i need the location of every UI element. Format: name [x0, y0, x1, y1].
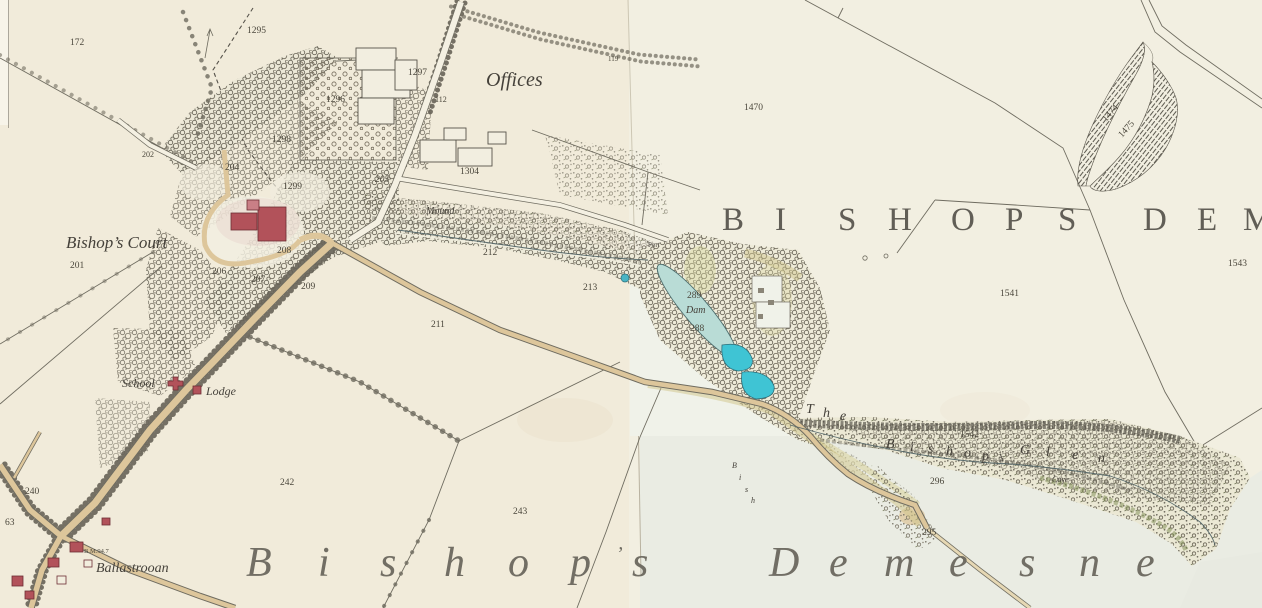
svg-text:D: D — [1143, 202, 1167, 238]
svg-text:Lodge: Lodge — [205, 384, 237, 398]
svg-text:202: 202 — [142, 150, 154, 159]
svg-text:i: i — [318, 540, 330, 586]
svg-text:B: B — [886, 437, 895, 452]
svg-text:1298: 1298 — [272, 135, 291, 145]
svg-text:Ballastrooan: Ballastrooan — [96, 561, 169, 576]
svg-text:288: 288 — [690, 324, 705, 334]
svg-text:D: D — [768, 540, 799, 586]
svg-text:E: E — [1197, 202, 1217, 238]
svg-text:1470: 1470 — [744, 103, 763, 113]
svg-text:1297: 1297 — [408, 68, 427, 78]
svg-text:Port: Port — [648, 241, 660, 249]
svg-text:h: h — [823, 406, 830, 421]
svg-text:n: n — [1098, 451, 1105, 466]
svg-text:h: h — [444, 540, 465, 586]
svg-text:p: p — [567, 540, 591, 586]
svg-text:205: 205 — [375, 175, 390, 185]
svg-text:B: B — [722, 202, 744, 238]
svg-text:T: T — [806, 402, 815, 417]
svg-text:1542: 1542 — [960, 430, 979, 440]
svg-text:s: s — [632, 540, 648, 586]
svg-text:S: S — [838, 202, 856, 238]
svg-text:o: o — [508, 540, 529, 586]
svg-text:H: H — [888, 202, 912, 238]
svg-text:o: o — [964, 446, 971, 461]
svg-text:Offices: Offices — [486, 69, 543, 91]
svg-text:h: h — [751, 496, 755, 505]
svg-text:211: 211 — [431, 320, 445, 330]
svg-text:204: 204 — [225, 163, 240, 173]
svg-text:e: e — [1072, 448, 1078, 463]
svg-text:296: 296 — [930, 477, 945, 487]
svg-text:’s: ’s — [998, 453, 1004, 464]
svg-text:I: I — [775, 202, 786, 238]
svg-text:m: m — [884, 540, 914, 586]
svg-text:P: P — [1005, 202, 1023, 238]
svg-text:s: s — [380, 540, 396, 586]
svg-text:213: 213 — [583, 283, 598, 293]
svg-text:s: s — [1019, 540, 1035, 586]
svg-text:O: O — [951, 202, 975, 238]
svg-text:240: 240 — [25, 487, 40, 497]
svg-text:207: 207 — [251, 275, 266, 285]
svg-text:B: B — [732, 461, 737, 470]
svg-text:289: 289 — [687, 291, 702, 301]
svg-text:S: S — [1058, 202, 1076, 238]
svg-text:Cave: Cave — [1052, 475, 1069, 484]
svg-text:208: 208 — [277, 246, 292, 256]
svg-text:1295: 1295 — [247, 26, 266, 36]
svg-text:242: 242 — [280, 478, 295, 488]
svg-text:201: 201 — [70, 261, 85, 271]
svg-text:e: e — [840, 409, 846, 424]
svg-text:1541: 1541 — [1000, 289, 1019, 299]
svg-text:B: B — [246, 540, 272, 586]
svg-text:s: s — [745, 485, 748, 494]
svg-text:209: 209 — [301, 282, 316, 292]
svg-text:Mound: Mound — [425, 206, 455, 217]
svg-text:206: 206 — [212, 267, 227, 277]
svg-text:1304: 1304 — [460, 167, 479, 177]
svg-text:e: e — [1136, 540, 1155, 586]
svg-text:i: i — [739, 473, 741, 482]
svg-text:h: h — [946, 444, 953, 459]
svg-text:212: 212 — [483, 248, 498, 258]
svg-text:172: 172 — [70, 38, 85, 48]
svg-text:Dam: Dam — [685, 305, 705, 316]
svg-text:63: 63 — [5, 518, 15, 528]
svg-text:s: s — [928, 442, 934, 457]
svg-text:e: e — [949, 540, 968, 586]
svg-text:112: 112 — [435, 95, 447, 104]
svg-text:M: M — [1243, 202, 1262, 238]
svg-text:n: n — [1079, 540, 1100, 586]
svg-text:243: 243 — [513, 507, 528, 517]
svg-text:l: l — [1046, 445, 1050, 460]
svg-text:1299: 1299 — [283, 182, 302, 192]
svg-text:e: e — [829, 540, 848, 586]
svg-text:i: i — [910, 440, 914, 455]
svg-text:295: 295 — [922, 528, 937, 538]
svg-text:1543: 1543 — [1228, 259, 1247, 269]
svg-text:Bishop’s Court: Bishop’s Court — [66, 233, 169, 252]
svg-text:p: p — [981, 449, 989, 464]
svg-text:School: School — [122, 376, 155, 390]
svg-text:’: ’ — [616, 543, 623, 565]
svg-text:B.M.94.7: B.M.94.7 — [84, 548, 109, 555]
svg-text:119: 119 — [608, 55, 619, 63]
svg-text:1296: 1296 — [326, 95, 345, 105]
svg-text:G: G — [1020, 443, 1030, 458]
